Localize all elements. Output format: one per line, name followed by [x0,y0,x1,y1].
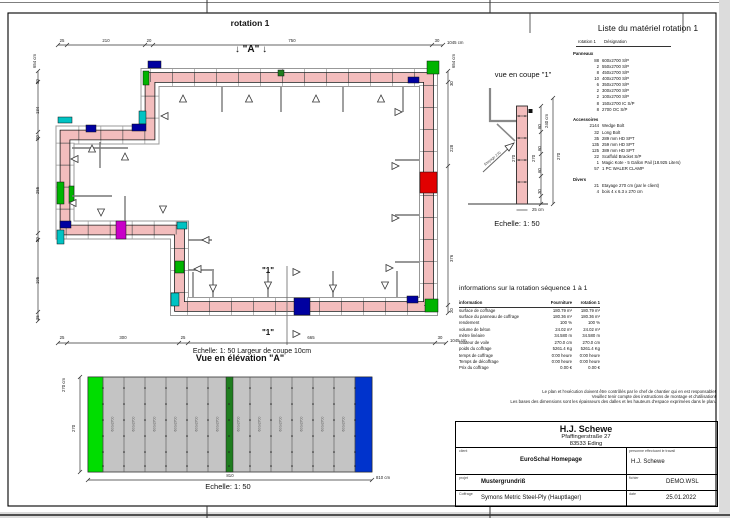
dim-label: 60 [538,146,542,151]
elevation-height-unit: 270 cm [62,378,66,392]
section-base-width: 25 cm [532,208,544,212]
file-label: fichier [629,476,639,480]
client-label: client [459,449,467,453]
date-label: date [629,492,636,496]
project-value: Mustergrundriß [481,479,525,485]
info-table: informationFourniturerotation 1surface d… [459,300,600,372]
section-1-marker-bottom: "1" [262,329,274,337]
dim-label: 60 [538,124,542,129]
material-list-header-designation: Désignation [604,40,627,44]
disclaimer-line: Les bases des dimensions sont les épaiss… [416,399,716,404]
material-row: 571 PC WALER CLAMP [573,166,719,172]
section-1-marker-top: "1" [262,267,274,275]
elevation-width: 810 [226,474,233,478]
dim-label: 665 [307,336,314,340]
dim-label: 25 [60,336,65,340]
dim-label: 20 [36,135,40,140]
material-list-rows: Panneaux88600x2700 S/P2550x2700 S/P8450x… [573,47,719,195]
info-table-row: Prix du coffrage0.00 €0.00 € [459,365,600,371]
section-wall-height: 270 [532,155,536,162]
dim-label: 60 [538,168,542,173]
elevation-height: 270 [72,425,76,432]
title-block: H.J. Schewe Pfaffingerstraße 27 83533 Ed… [455,421,718,507]
dim-label: 25 [181,336,186,340]
section-scale: Echelle: 1: 50 [494,220,539,228]
dim-label: 20 [450,308,454,313]
section-wall-height: 270 [512,155,516,162]
dim-label: 210 [102,39,109,43]
info-table-header: informationFourniturerotation 1 [459,300,600,308]
client-value: EuroSchal Homepage [520,457,582,463]
dim-label: 228 [450,145,454,152]
formwork-value: Symons Metric Steel-Ply (Hauptlager) [481,495,581,501]
material-row: 4bois 4 x 6.3 x 270 cm [573,189,719,195]
company-address-2: 83533 Eding [570,442,603,448]
dim-label: 195 [36,277,40,284]
dim-label: 30 [538,189,542,194]
info-table-title: informations sur la rotation séquence 1 … [459,286,587,293]
dim-label: 750 [288,39,295,43]
worker-value: H.J. Schewe [631,459,665,465]
dim-label: 255 [36,187,40,194]
dim-label: 134 [36,107,40,114]
dim-label: 30 [450,81,454,86]
dim-label: 30 [435,39,440,43]
formwork-label: Coffrage [459,492,473,496]
material-row: 82700 OC S/P [573,107,719,113]
dim-total-left: 654 cm [33,54,37,68]
dim-label: 20 [36,237,40,242]
worker-label: personne effectuant le travail [629,449,675,453]
elevation-width-unit: 810 cm [376,476,390,480]
dim-label: 30 [36,79,40,84]
material-list-title: Liste du matériel rotation 1 [598,24,698,33]
company-name: H.J. Schewe [560,425,613,434]
dim-label: 20 [147,39,152,43]
plan-title: rotation 1 [231,19,270,28]
drawing-sheet-page: { "plan": { "title": "rotation 1", "mark… [0,0,730,518]
dim-label: 376 [450,255,454,262]
dim-label: 30 [438,336,443,340]
section-dim-right: 240 cm [545,114,549,128]
dim-label: 25 [60,39,65,43]
elevation-title: Vue en élévation "A" [196,354,284,363]
project-label: projet [459,476,468,480]
section-a-marker: ↓ "A" ↓ [235,45,267,55]
section-dim-total: 270 [557,153,561,160]
dim-label: 25 [36,315,40,320]
file-value: DEMO.WSL [666,479,699,485]
dim-total-top: 1045 cm [447,41,463,45]
dim-total-right: 654 cm [452,54,456,68]
disclaimer: Le plan et l'exécution doivent être cont… [416,389,716,404]
section-title: vue en coupe "1" [495,71,552,79]
date-value: 25.01.2022 [666,495,696,501]
elevation-scale: Echelle: 1: 50 [205,483,250,491]
material-list-header-qty: rotation 1 [578,40,596,44]
dim-label: 300 [119,336,126,340]
